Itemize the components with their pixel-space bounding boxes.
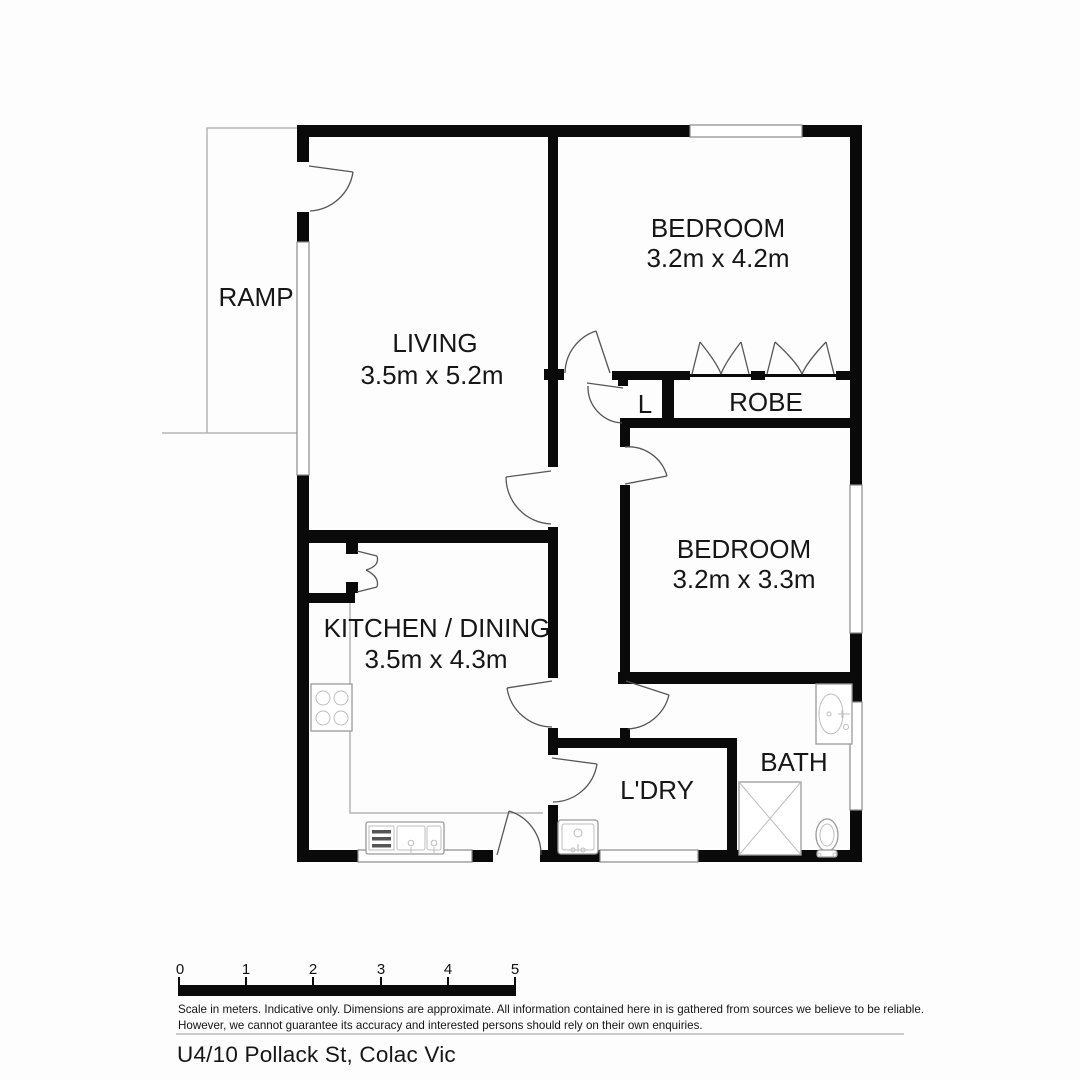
label-bedroom2: BEDROOM: [677, 534, 811, 564]
label-kitchen-dims: 3.5m x 4.3m: [364, 644, 507, 674]
floorplan-page: RAMP LIVING 3.5m x 5.2m BEDROOM 3.2m x 4…: [0, 0, 1080, 1080]
scale-bar: 0 1 2 3 4 5: [176, 961, 519, 996]
label-robe: ROBE: [729, 387, 803, 417]
robe-bifold-doors: [692, 342, 834, 374]
bedroom2-door: [625, 447, 667, 484]
scale-tick-4: 4: [444, 961, 452, 978]
label-bedroom1: BEDROOM: [651, 213, 785, 243]
vanity-basin-icon: [816, 684, 852, 744]
label-ramp: RAMP: [218, 282, 293, 312]
disclaimer-line1: Scale in meters. Indicative only. Dimens…: [178, 1003, 924, 1016]
label-bedroom2-dims: 3.2m x 3.3m: [672, 564, 815, 594]
label-linen: L: [638, 389, 652, 419]
pantry-doors: [357, 551, 378, 592]
laundry-door: [552, 758, 597, 802]
laundry-trough-icon: [558, 820, 598, 854]
ramp-outline: [162, 128, 297, 433]
bath-door: [626, 681, 669, 729]
label-living: LIVING: [392, 328, 477, 358]
shower-icon: [739, 782, 801, 855]
toilet-icon: [816, 819, 838, 857]
scale-tick-5: 5: [511, 961, 519, 978]
bedroom1-door: [565, 331, 610, 373]
kitchen-sink-icon: [366, 822, 444, 854]
disclaimer-line2: However, we cannot guarantee its accurac…: [178, 1019, 703, 1032]
kitchen-door: [507, 681, 552, 727]
kitchen-exterior-door: [497, 811, 541, 855]
label-bath: BATH: [760, 747, 827, 777]
scale-tick-1: 1: [242, 961, 250, 978]
scale-tick-3: 3: [377, 961, 385, 978]
living-hall-door: [506, 471, 551, 524]
label-kitchen: KITCHEN / DINING: [324, 613, 551, 643]
linen-door: [587, 383, 623, 423]
address: U4/10 Pollack St, Colac Vic: [177, 1042, 456, 1067]
scale-tick-2: 2: [309, 961, 317, 978]
floorplan-svg: RAMP LIVING 3.5m x 5.2m BEDROOM 3.2m x 4…: [0, 0, 1080, 1080]
label-bedroom1-dims: 3.2m x 4.2m: [646, 243, 789, 273]
label-laundry: L'DRY: [620, 775, 694, 805]
scale-tick-0: 0: [176, 961, 184, 978]
entry-door: [309, 166, 353, 211]
stove-icon: [311, 684, 352, 731]
footer: Scale in meters. Indicative only. Dimens…: [176, 1003, 924, 1067]
label-living-dims: 3.5m x 5.2m: [360, 360, 503, 390]
